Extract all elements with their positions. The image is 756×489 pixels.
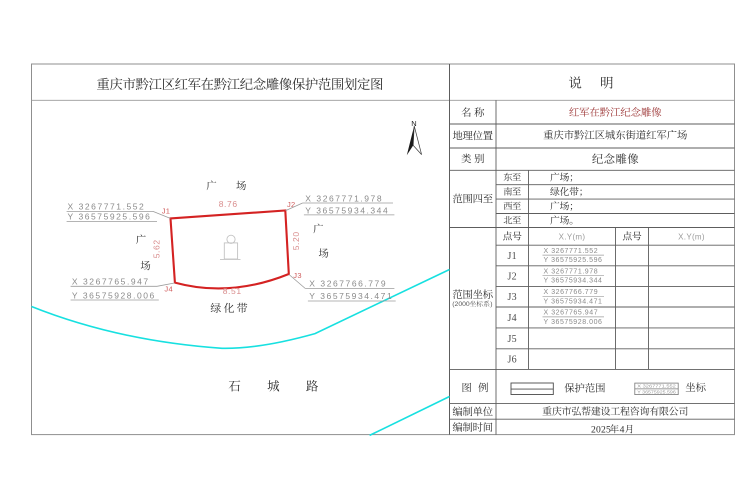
- svg-text:X 3267765.947: X 3267765.947: [72, 276, 150, 286]
- svg-text:X 3267771.552: X 3267771.552: [68, 201, 146, 211]
- svg-text:2025: 2025: [591, 425, 611, 436]
- svg-text:Y 36575925.596: Y 36575925.596: [68, 212, 152, 222]
- svg-text:Y 36575928.006: Y 36575928.006: [544, 319, 603, 326]
- svg-text:J4: J4: [164, 285, 173, 294]
- svg-text:J1: J1: [507, 251, 517, 262]
- svg-text:): ): [490, 301, 492, 308]
- svg-text:Y 36575934.344: Y 36575934.344: [305, 205, 389, 215]
- svg-text:X 3267771.978: X 3267771.978: [305, 193, 383, 203]
- svg-text:J2: J2: [507, 272, 517, 283]
- svg-text:8.51: 8.51: [223, 286, 242, 296]
- svg-text:Y 36575934.471: Y 36575934.471: [544, 298, 603, 305]
- svg-text:Y 36575925.596: Y 36575925.596: [637, 389, 676, 394]
- svg-text:X 3267771.978: X 3267771.978: [544, 268, 599, 275]
- svg-text:X 3267771.552: X 3267771.552: [637, 384, 676, 389]
- svg-text:X.Y(m): X.Y(m): [678, 233, 705, 242]
- svg-text:8.76: 8.76: [219, 199, 238, 209]
- svg-text:5.20: 5.20: [291, 231, 301, 250]
- svg-text:J3: J3: [507, 292, 517, 303]
- svg-text:Y 36575925.596: Y 36575925.596: [544, 257, 603, 264]
- svg-text:J1: J1: [162, 207, 171, 216]
- svg-text:(2000: (2000: [452, 301, 470, 308]
- svg-text:4: 4: [620, 425, 625, 436]
- svg-text:J3: J3: [293, 271, 302, 280]
- svg-text:X.Y(m): X.Y(m): [559, 233, 586, 242]
- svg-text:X 3267771.552: X 3267771.552: [544, 248, 599, 255]
- svg-text:X 3267766.779: X 3267766.779: [309, 278, 387, 288]
- svg-text:X 3267766.779: X 3267766.779: [544, 289, 599, 296]
- svg-text:X 3267765.947: X 3267765.947: [544, 310, 599, 317]
- svg-text:Y 36575934.344: Y 36575934.344: [544, 278, 603, 285]
- svg-text:J5: J5: [507, 334, 517, 345]
- svg-text:J6: J6: [507, 355, 517, 366]
- svg-text:Y 36575934.471: Y 36575934.471: [309, 291, 393, 301]
- svg-text:J4: J4: [507, 313, 517, 324]
- svg-text:Y 36575928.006: Y 36575928.006: [72, 290, 156, 300]
- svg-text:5.62: 5.62: [152, 239, 162, 258]
